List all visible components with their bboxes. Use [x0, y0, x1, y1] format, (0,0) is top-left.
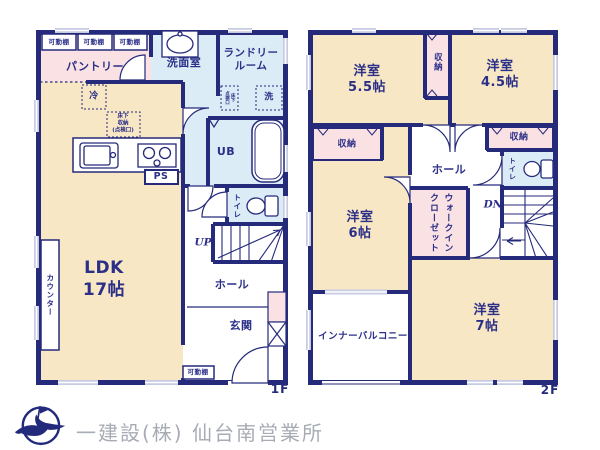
- hall2f-label: ホール: [432, 163, 467, 177]
- pipe-space-label: PS: [154, 171, 169, 183]
- toilet2f-label: トイレ: [508, 157, 517, 181]
- floor-tag-1f: 1F: [271, 382, 290, 396]
- room45-door: [455, 125, 482, 152]
- stairs-1f-up: [218, 224, 284, 262]
- unit-bath-label: UB: [217, 145, 235, 159]
- entrance-shelf-label: 可動棚: [188, 368, 209, 376]
- counter-label: カウンター: [45, 274, 54, 317]
- movable-shelf-label-3: 可動棚: [120, 38, 141, 46]
- kitchen-stove: [138, 144, 176, 167]
- bathtub: [252, 120, 284, 182]
- floor-hatch-label: 床下 点検口: [224, 91, 235, 105]
- washer-label: 洗: [264, 92, 274, 103]
- laundry-label: ランドリー ルーム: [224, 47, 279, 73]
- room45-label: 洋室 4.5帖: [481, 59, 519, 92]
- closet-left-label: 収納: [337, 139, 356, 150]
- inner-balcony-label: インナーバルコニー: [318, 331, 408, 343]
- hall1f-label: ホール: [215, 278, 250, 292]
- room55-label: 洋室 5.5帖: [348, 64, 386, 97]
- pantry-label: パントリー: [66, 60, 124, 74]
- floor-tag-2f: 2F: [541, 383, 560, 397]
- room55-door: [423, 125, 450, 152]
- entrance-label: 玄関: [230, 319, 253, 333]
- toilet1f-label: トイレ: [232, 193, 241, 219]
- ldk-label: LDK 17帖: [83, 257, 125, 301]
- walk-in-closet-label: ウォークイン クローゼット: [426, 193, 455, 253]
- company-bird-logo: [12, 395, 68, 449]
- floorplan-canvas: 可動棚 可動棚 可動棚 パントリー 洗面室 ランドリー ルーム 洗 床下 点検口…: [0, 0, 600, 450]
- underfloor-storage-label: 床下 収納 (点検口): [112, 114, 134, 135]
- room6-label: 洋室 6帖: [346, 210, 373, 243]
- entrance-door: [232, 347, 268, 383]
- company-name: 一建設(株) 仙台南営業所: [76, 417, 324, 446]
- closet-right-label: 収納: [509, 132, 528, 143]
- room7-label: 洋室 7帖: [473, 303, 500, 336]
- shoe-cabinet: [268, 292, 286, 346]
- closet-center-label: 収納: [432, 53, 443, 72]
- stairs-down-label: DN: [484, 198, 503, 211]
- fridge-label: 冷: [89, 91, 99, 102]
- room7-stairs-door: [470, 228, 500, 258]
- room55-alcove: [425, 98, 450, 125]
- washroom-sink: [162, 31, 198, 57]
- movable-shelf-label-2: 可動棚: [84, 38, 105, 46]
- movable-shelf-label-1: 可動棚: [49, 38, 70, 46]
- stairs-up-label: UP: [194, 236, 211, 249]
- kitchen-sink: [80, 143, 118, 168]
- washroom-label: 洗面室: [167, 56, 202, 70]
- stairs-2f-down: [502, 190, 553, 258]
- toilet2f-door: [473, 156, 502, 185]
